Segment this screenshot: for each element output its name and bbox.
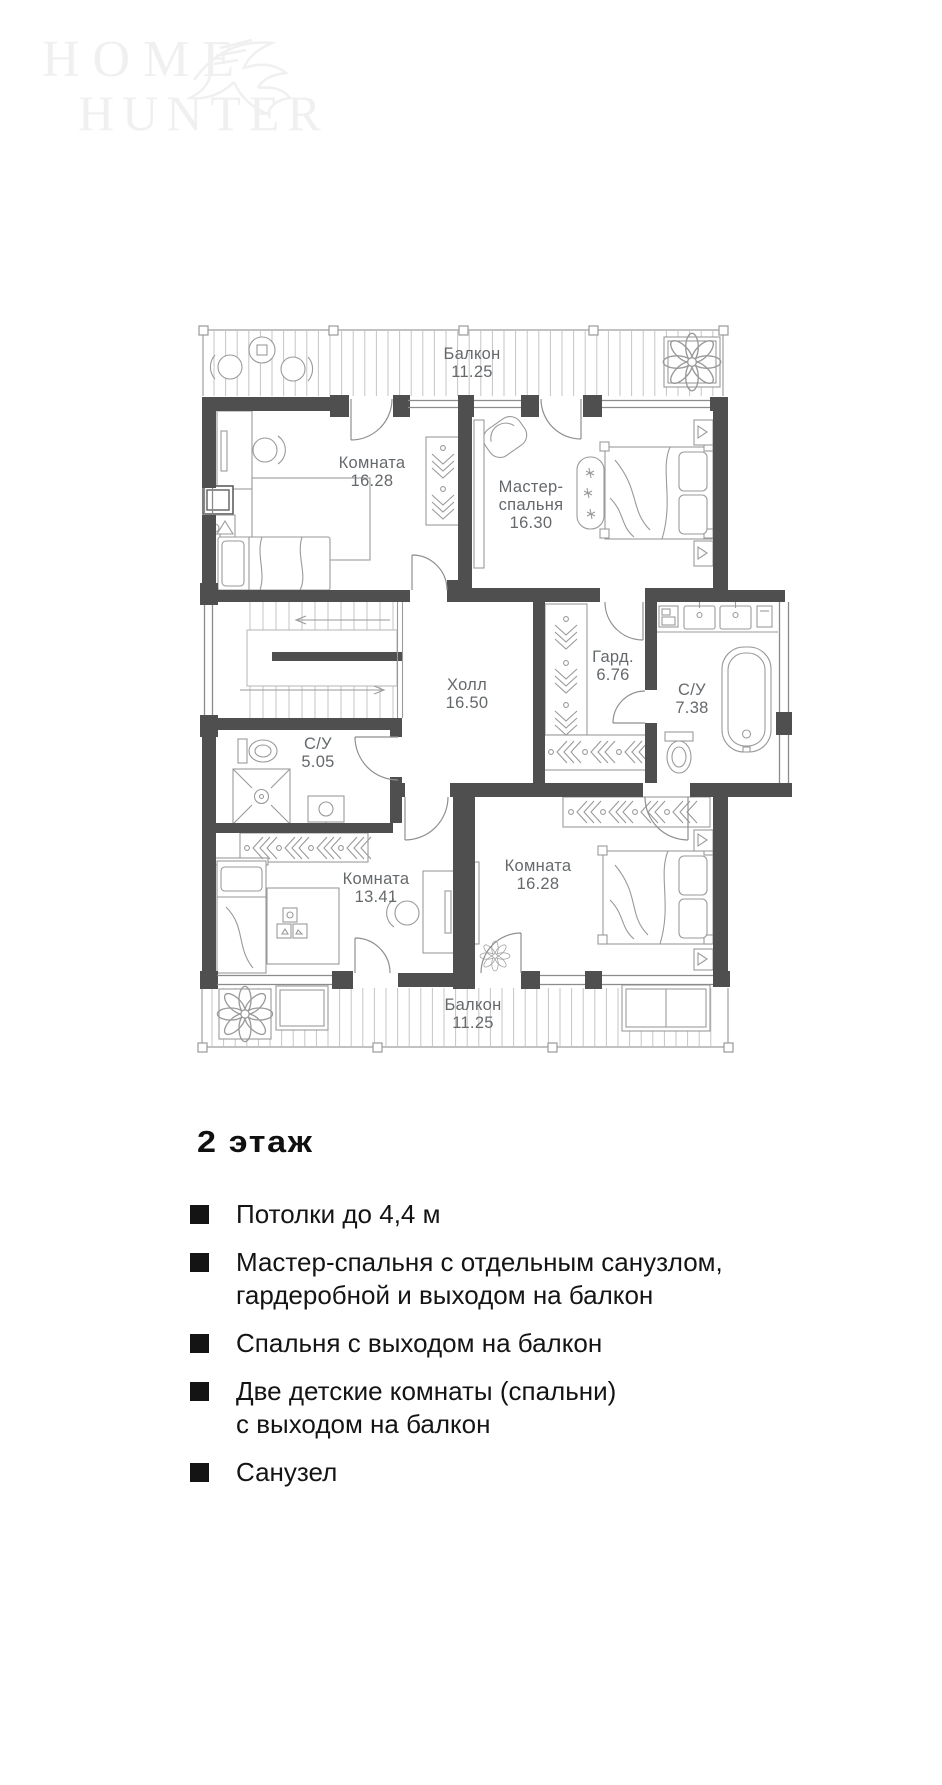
room-label-balcony-bottom: Балкон 11.25 [444,996,501,1032]
room-label-hall: Холл 16.50 [446,676,489,712]
bullet-square-icon [190,1253,209,1272]
home-hunter-logo: Home Hunter [0,0,400,170]
bullet-square-icon [190,1382,209,1401]
bullet-square-icon [190,1463,209,1482]
feature-list: Потолки до 4,4 м Мастер-спальня с отдель… [190,1198,750,1504]
bullet-square-icon [190,1334,209,1353]
list-item: Мастер-спальня с отдельным санузлом, гар… [190,1246,750,1312]
room-top-left-furniture [203,411,460,592]
eagle-icon [180,18,310,128]
room-label-bathroom-master: С/У 7.38 [675,681,708,717]
room-label-room-top-left: Комната 16.28 [339,454,406,490]
list-item: Две детские комнаты (спальни) с выходом … [190,1375,750,1441]
room-bottom-right-furniture [563,797,713,970]
stairs [240,602,403,718]
floor-title: 2 этаж [197,1124,314,1160]
floor-plan [165,315,825,1065]
room-label-balcony-top: Балкон 11.25 [443,345,500,381]
list-item: Потолки до 4,4 м [190,1198,750,1231]
list-item: Спальня с выходом на балкон [190,1327,750,1360]
room-label-master-bedroom: Мастер-спальня 16.30 [484,478,578,532]
room-label-wardrobe: Гард. 6.76 [592,648,634,684]
page: Home Hunter [0,0,942,1785]
room-label-room-bottom-left: Комната 13.41 [343,870,410,906]
list-item: Санузел [190,1456,750,1489]
room-label-room-bottom-right: Комната 16.28 [505,857,572,893]
bullet-square-icon [190,1205,209,1224]
room-label-bathroom-small: С/У 5.05 [301,735,334,771]
